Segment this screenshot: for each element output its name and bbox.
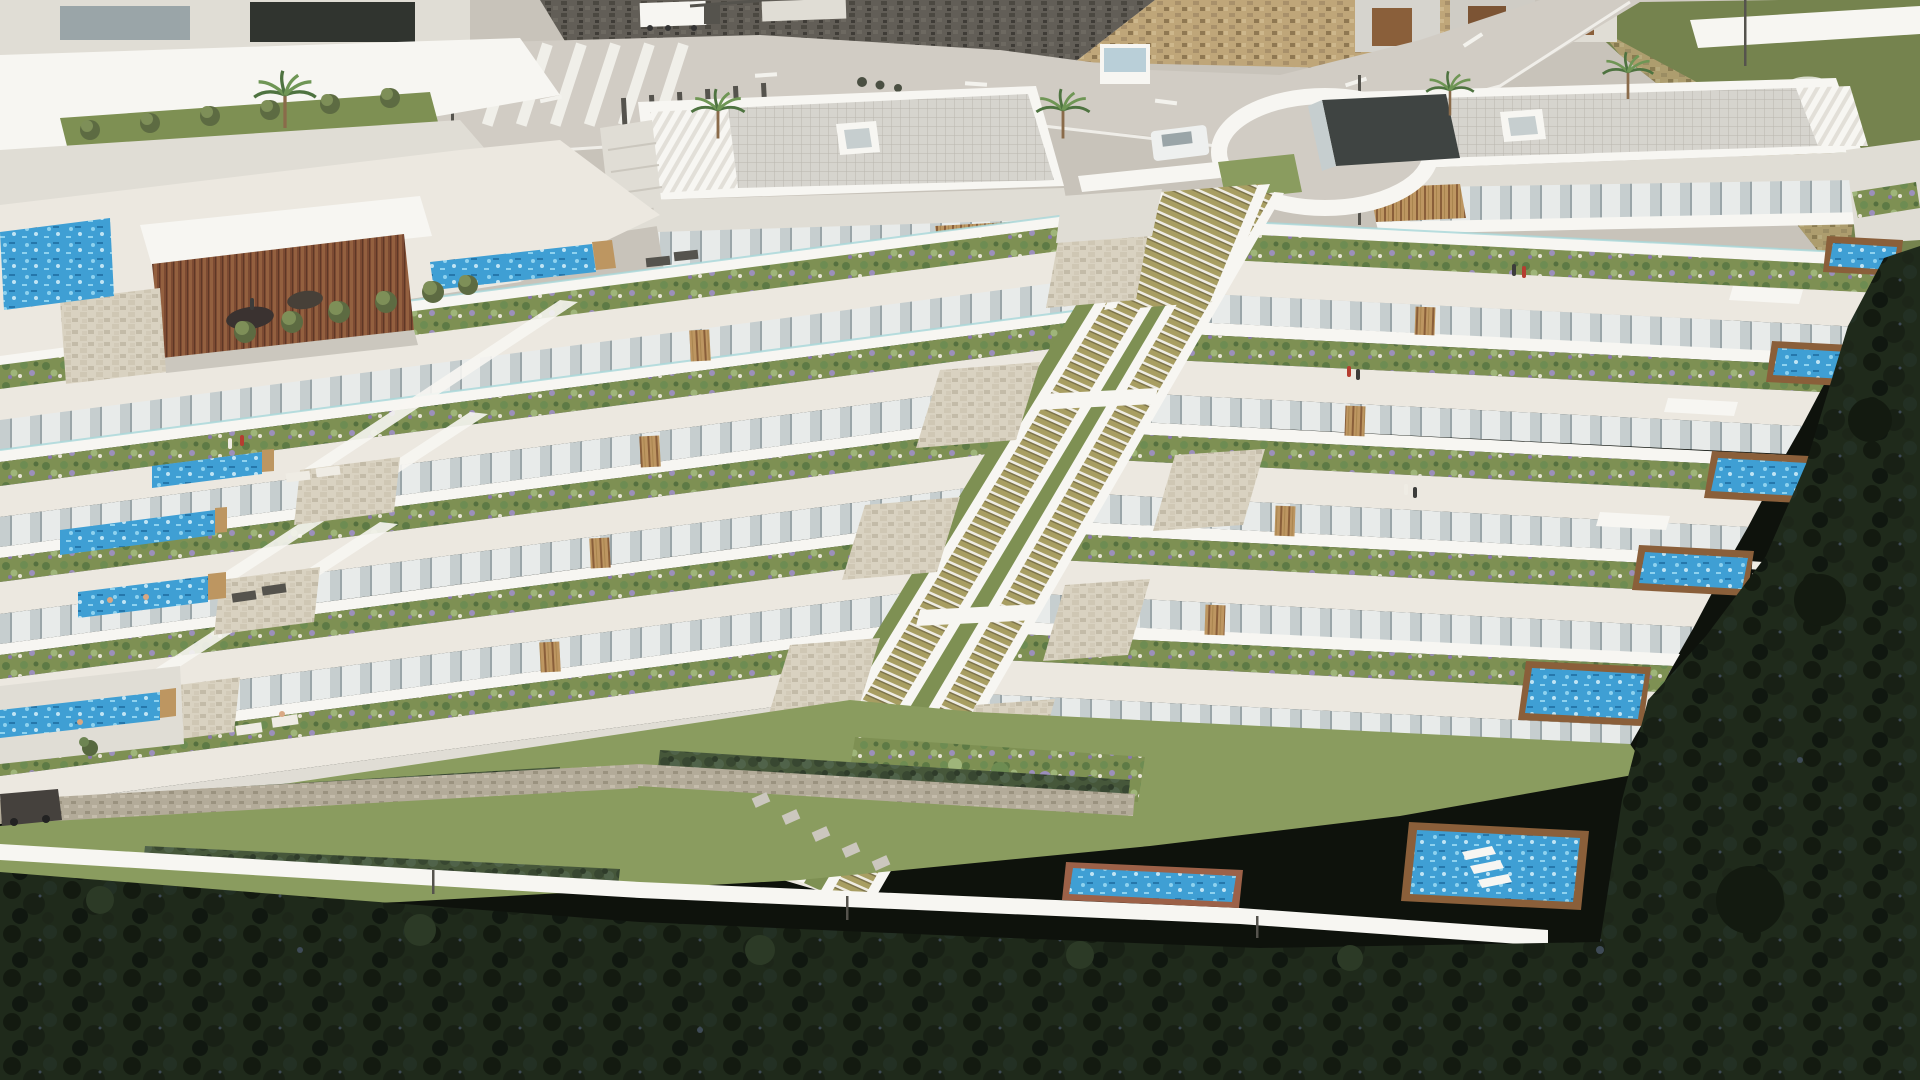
- wood-door: [539, 641, 561, 672]
- stone-wall: [60, 288, 166, 384]
- pool-deck-wood: [262, 449, 274, 472]
- lamp-post: [1744, 0, 1747, 66]
- car-wheel: [10, 818, 18, 826]
- truck-cab: [704, 4, 720, 24]
- tree-top: [201, 106, 213, 118]
- wood-door: [1344, 406, 1365, 437]
- roadside-shrub: [876, 81, 885, 90]
- truck-wheel: [665, 25, 671, 31]
- skylight-inner: [1508, 116, 1538, 136]
- rock-glint: [1797, 757, 1803, 763]
- boundary-fence: [1240, 908, 1548, 946]
- pool-deck-wood: [592, 240, 616, 270]
- roof-louvers: [650, 108, 738, 193]
- person: [240, 435, 244, 446]
- architectural-rendering: [0, 0, 1920, 1080]
- tree-top: [261, 100, 273, 112]
- tree-crown: [1794, 574, 1846, 626]
- villa-glazing: [60, 6, 190, 40]
- wood-door: [639, 435, 661, 467]
- tree-top: [141, 113, 153, 125]
- tree-crown: [745, 935, 775, 965]
- person: [250, 298, 254, 310]
- wood-door: [589, 537, 611, 568]
- entrance-pavilion: [1322, 94, 1460, 166]
- rock-glint: [1596, 946, 1604, 954]
- upper-terrace-block: [1056, 189, 1162, 243]
- scene: [0, 0, 1920, 1080]
- roadside-shrub: [894, 84, 902, 92]
- truck-wheel: [647, 25, 653, 31]
- parked-dark-car: [0, 789, 62, 826]
- pool-deck-wood: [215, 507, 227, 533]
- person-swimming: [77, 719, 83, 725]
- pool-deck-wood: [160, 688, 176, 718]
- tree-top: [282, 311, 296, 325]
- tree-top: [376, 291, 390, 305]
- rock-glint: [697, 1027, 703, 1033]
- person-swimming: [107, 597, 113, 603]
- person: [1512, 264, 1516, 276]
- person-lounging: [279, 711, 285, 717]
- fence-post: [1256, 916, 1259, 938]
- tree-top: [459, 275, 471, 287]
- potted-palm-top: [79, 737, 89, 747]
- person: [1356, 369, 1360, 380]
- tree-top: [235, 321, 249, 335]
- plunge-pool: [1525, 668, 1645, 719]
- tree-crown: [404, 914, 436, 946]
- truck: [762, 0, 847, 21]
- tree-crown: [1848, 398, 1892, 442]
- tree-top: [321, 94, 333, 106]
- rock-glint: [297, 947, 303, 953]
- person: [1522, 266, 1526, 278]
- roadside-shrub: [857, 77, 867, 87]
- tree-top: [81, 120, 93, 132]
- person: [1347, 366, 1351, 377]
- tree-crown: [1066, 941, 1094, 969]
- car-wheel: [42, 815, 50, 823]
- person: [1404, 484, 1408, 495]
- wood-door: [1415, 307, 1436, 336]
- garage-door: [1372, 8, 1412, 46]
- lap-pool: [0, 218, 114, 310]
- tree-top: [381, 88, 393, 100]
- wood-door: [689, 329, 711, 361]
- tree-top: [423, 281, 437, 295]
- wood-door: [1274, 506, 1295, 537]
- truck-wheel: [691, 25, 697, 31]
- wood-door: [1204, 605, 1225, 636]
- villa-glazing: [250, 2, 415, 42]
- person: [228, 438, 232, 449]
- plunge-pool: [1639, 552, 1748, 589]
- fence-post: [846, 896, 849, 920]
- roof-gravel: [728, 94, 1054, 188]
- fence-post: [432, 870, 435, 894]
- tree-top: [329, 301, 343, 315]
- person-swimming: [143, 594, 149, 600]
- person: [1413, 487, 1417, 498]
- tree-crown: [86, 886, 114, 914]
- tree-crown: [1337, 945, 1363, 971]
- pool-deck-wood: [208, 572, 226, 600]
- skylight-inner: [844, 128, 872, 149]
- tree-crown: [1716, 866, 1784, 934]
- billboard-image: [1104, 48, 1146, 72]
